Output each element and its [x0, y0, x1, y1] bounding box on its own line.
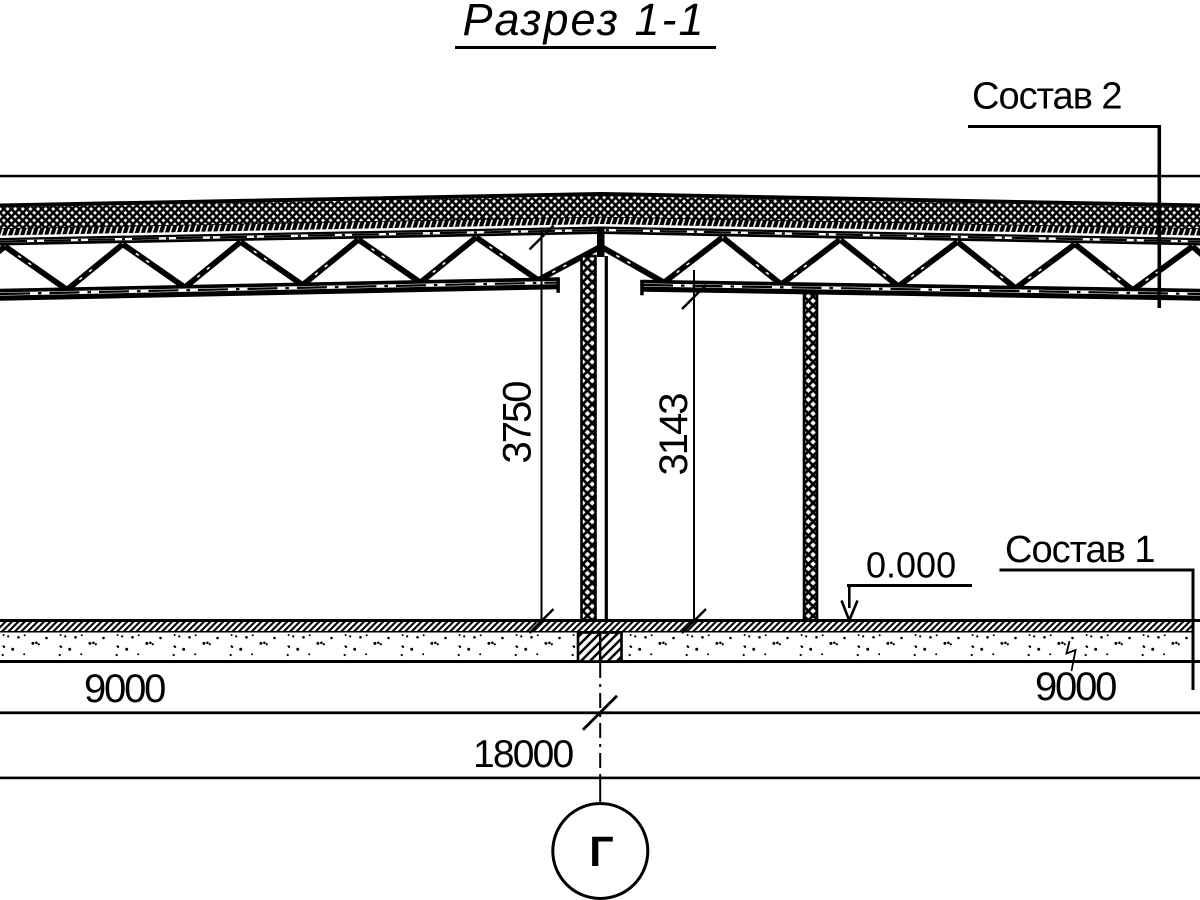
svg-text:Состав 2: Состав 2: [972, 76, 1122, 118]
svg-text:Разрез 1-1: Разрез 1-1: [463, 0, 706, 45]
svg-text:0.000: 0.000: [866, 545, 956, 586]
svg-text:Г: Г: [589, 828, 613, 876]
svg-text:3143: 3143: [652, 394, 696, 476]
svg-text:9000: 9000: [1035, 665, 1116, 709]
svg-text:3750: 3750: [496, 382, 540, 464]
svg-text:Состав 1: Состав 1: [1005, 529, 1155, 571]
svg-text:9000: 9000: [84, 667, 165, 711]
svg-text:18000: 18000: [473, 733, 574, 776]
